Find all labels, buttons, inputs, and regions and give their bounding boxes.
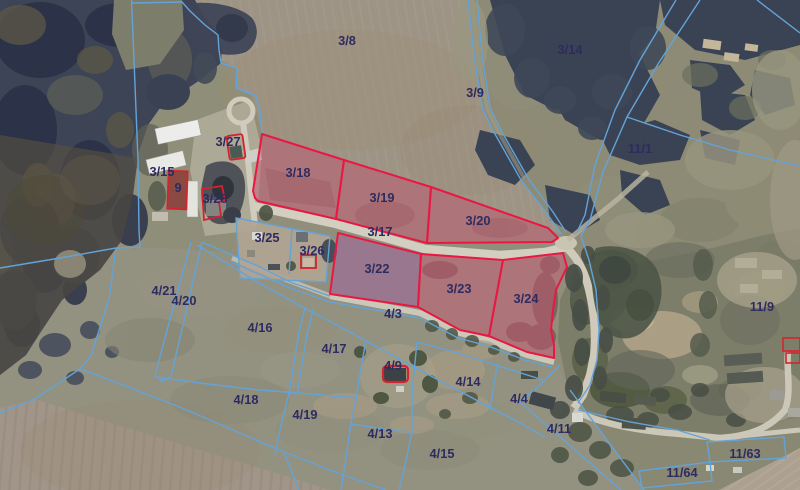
- svg-text:3/25: 3/25: [255, 230, 280, 245]
- svg-text:4/9: 4/9: [384, 358, 402, 373]
- svg-text:11/63: 11/63: [729, 446, 760, 461]
- svg-text:4/18: 4/18: [234, 392, 259, 407]
- svg-text:11/64: 11/64: [666, 465, 698, 480]
- svg-text:3/27: 3/27: [216, 134, 241, 149]
- svg-text:4/4: 4/4: [510, 391, 529, 406]
- svg-text:4/14: 4/14: [456, 374, 482, 389]
- svg-text:3/28: 3/28: [203, 191, 228, 206]
- svg-text:3/19: 3/19: [370, 190, 395, 205]
- svg-text:4/3: 4/3: [384, 306, 402, 321]
- svg-text:9: 9: [174, 180, 181, 195]
- svg-text:4/20: 4/20: [172, 293, 197, 308]
- svg-text:3/17: 3/17: [368, 224, 393, 239]
- svg-text:3/15: 3/15: [150, 164, 175, 179]
- svg-text:3/14: 3/14: [558, 42, 584, 57]
- svg-text:4/13: 4/13: [368, 426, 393, 441]
- svg-text:3/23: 3/23: [447, 281, 472, 296]
- svg-text:4/15: 4/15: [430, 446, 455, 461]
- svg-text:4/16: 4/16: [248, 320, 273, 335]
- svg-text:4/19: 4/19: [293, 407, 318, 422]
- svg-text:3/24: 3/24: [514, 291, 540, 306]
- svg-text:3/9: 3/9: [466, 85, 484, 100]
- svg-text:3/20: 3/20: [466, 213, 491, 228]
- svg-text:3/8: 3/8: [338, 33, 356, 48]
- svg-text:11/1: 11/1: [628, 141, 652, 156]
- svg-text:11/9: 11/9: [750, 299, 774, 314]
- svg-text:3/22: 3/22: [365, 261, 390, 276]
- svg-text:3/26: 3/26: [300, 243, 325, 258]
- svg-text:3/18: 3/18: [286, 165, 311, 180]
- svg-text:4/17: 4/17: [322, 341, 347, 356]
- svg-text:4/11: 4/11: [547, 421, 571, 436]
